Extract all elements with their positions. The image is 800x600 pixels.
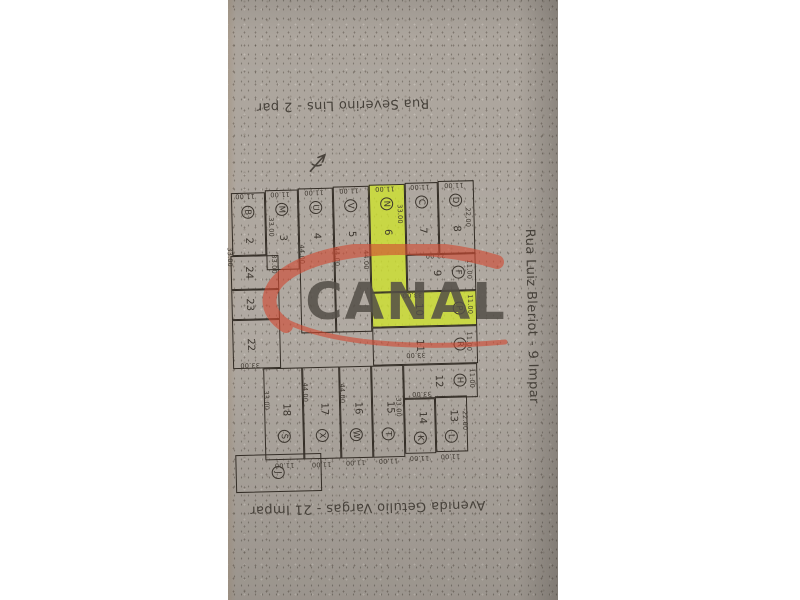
- lot-number: 24: [243, 266, 253, 279]
- dimension-label: 33.00: [270, 254, 277, 274]
- dimension-label: 11.00: [465, 259, 472, 279]
- dimension-label: 11.00: [465, 331, 472, 351]
- street-name-right: Rua Luiz Bleriot - 9 Impar: [522, 229, 541, 404]
- dimension-label: 44.00: [333, 247, 340, 267]
- dimension-label: 11.00: [312, 460, 332, 467]
- dimension-label: 11.00: [444, 181, 464, 188]
- dimension-label: 44.00: [301, 382, 308, 402]
- lot-map: Rua Severino Lins - 2 par Rua Luiz Bleri…: [0, 0, 800, 600]
- dimension-label: 11.00: [304, 188, 324, 195]
- lot-letter-badge: W: [350, 428, 363, 441]
- dimension-label: 33.00: [262, 390, 269, 410]
- lot-letter-badge: S: [277, 430, 290, 443]
- lot-letter-badge: H: [453, 373, 466, 386]
- dimension-label: 33.00: [406, 351, 426, 358]
- dimensions-container: 11.0011.0011.0011.0011.0011.0011.0011.00…: [0, 0, 792, 9]
- dimension-label: 44.00: [298, 245, 305, 265]
- dimension-label: 22.00: [464, 207, 471, 227]
- dimension-label: 11.00: [270, 190, 290, 197]
- lot-number: 23: [244, 298, 254, 311]
- photo-frame: Rua Severino Lins - 2 par Rua Luiz Bleri…: [0, 0, 800, 600]
- lot-letter-badge: U: [309, 201, 322, 214]
- lot-number: 22: [245, 338, 255, 351]
- street-name-top: Rua Severino Lins - 2 par: [245, 95, 441, 115]
- dimension-label: 33.00: [240, 361, 260, 368]
- dimension-label: 33.00: [394, 397, 401, 417]
- lot-2: 2B: [231, 192, 267, 256]
- street-name-bottom: Avenida Getúlio Vargas - 21 Impar: [239, 497, 495, 518]
- lot-number: 2: [243, 237, 253, 244]
- lot-number: 8: [451, 225, 461, 232]
- lot-number: 17: [318, 402, 328, 415]
- dimension-label: 11.00: [409, 454, 429, 461]
- lot-23: 23: [231, 289, 280, 320]
- lot-letter-badge: V: [344, 199, 357, 212]
- lot-number: 3: [277, 235, 287, 242]
- lot-letter-badge: X: [315, 429, 328, 442]
- dimension-label: 11.00: [440, 452, 460, 459]
- lot-letter-badge: K: [413, 431, 426, 444]
- dimension-label: 44.00: [362, 250, 369, 270]
- dimension-label: 33.00: [412, 390, 432, 397]
- lot-number: 18: [280, 403, 290, 416]
- lot-letter-badge: N: [380, 197, 393, 210]
- lot-number: 9: [431, 269, 441, 276]
- lot-J: J: [235, 453, 322, 493]
- dimension-label: 33.00: [267, 217, 274, 237]
- lot-17: 17X: [302, 367, 341, 460]
- lot-number: 13: [448, 409, 458, 422]
- lot-16: 16W: [339, 366, 373, 459]
- dimension-label: 11.00: [235, 192, 255, 199]
- dimension-label: 11.00: [466, 294, 473, 314]
- dimension-label: 22.00: [461, 411, 468, 431]
- lot-letter-badge: C: [414, 195, 427, 208]
- lot-letter-badge: F: [452, 265, 465, 278]
- lot-number: 12: [433, 375, 443, 388]
- lot-7: 7C: [405, 182, 440, 255]
- lot-number: 7: [416, 227, 426, 234]
- lot-letter-badge: B: [241, 206, 254, 219]
- lot-number: 4: [311, 233, 321, 240]
- lot-number: 10: [413, 303, 423, 316]
- lots-container: 2B3M4U5V6N7C8D9F10P11R12H14K13L15T16W17X…: [0, 0, 792, 9]
- dimension-label: 44.00: [338, 384, 345, 404]
- dimension-label: 33.00: [403, 291, 423, 298]
- lot-number: 16: [352, 402, 362, 415]
- lot-number: 5: [346, 231, 356, 238]
- dimension-label: 11.00: [339, 186, 359, 193]
- lot-number: 14: [416, 411, 426, 424]
- dimension-label: 22.00: [426, 251, 446, 258]
- north-arrow-icon: [304, 147, 335, 180]
- dimension-label: 33.00: [396, 204, 403, 224]
- dimension-label: 11.00: [375, 185, 395, 192]
- dimension-label: 11.00: [275, 461, 295, 468]
- lot-letter-badge: P: [453, 301, 466, 314]
- lot-letter-badge: D: [449, 193, 462, 206]
- lot-6: 6N: [369, 184, 408, 293]
- lot-14: 14K: [404, 398, 436, 454]
- lot-letter-badge: L: [445, 430, 458, 443]
- lot-10: 10P: [371, 290, 477, 328]
- lot-number: 6: [382, 229, 392, 236]
- dimension-label: 11.00: [410, 183, 430, 190]
- dimension-label: 11.00: [379, 457, 399, 464]
- dimension-label: 33.00: [226, 247, 233, 267]
- lot-11: 11R: [372, 325, 478, 366]
- lot-18: 18S: [263, 367, 304, 460]
- lot-letter-badge: T: [382, 427, 395, 440]
- lot-number: 15: [384, 401, 394, 414]
- dimension-label: 11.00: [346, 458, 366, 465]
- dimension-label: 11.00: [468, 368, 475, 388]
- lot-letter-badge: M: [275, 203, 288, 216]
